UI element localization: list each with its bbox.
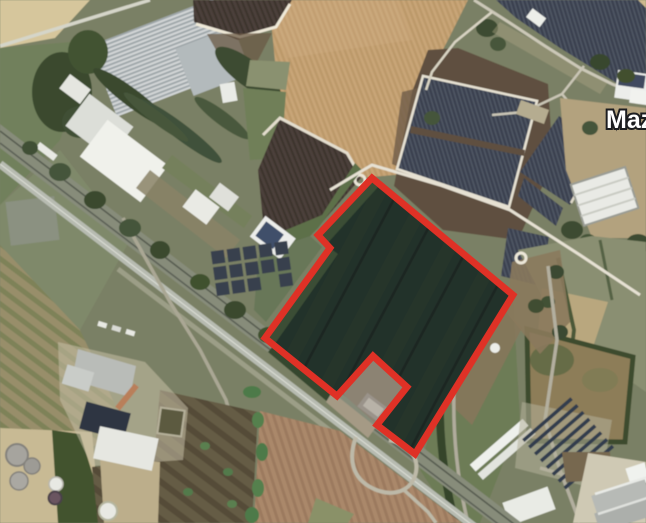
- svg-text:Maz: Maz: [606, 106, 646, 134]
